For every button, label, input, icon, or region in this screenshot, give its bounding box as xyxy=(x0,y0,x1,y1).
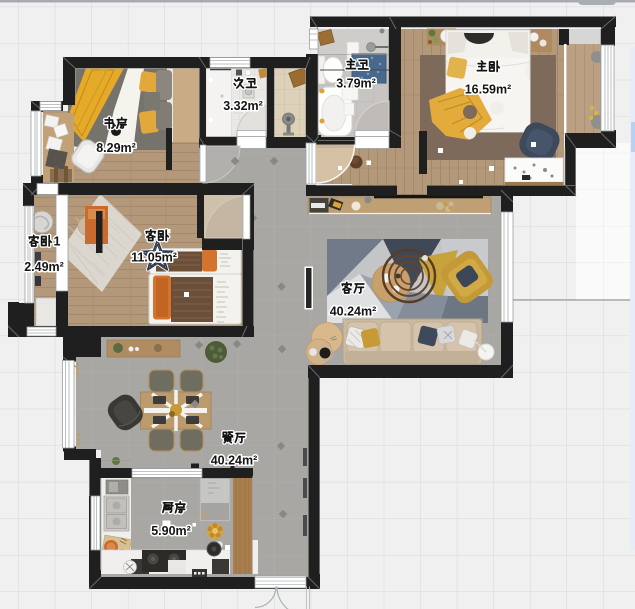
svg-text:8.29m²: 8.29m² xyxy=(96,141,136,155)
svg-text:3.32m²: 3.32m² xyxy=(223,99,263,113)
svg-text:1: 1 xyxy=(54,235,61,249)
svg-text:5.90m²: 5.90m² xyxy=(151,524,191,538)
svg-text:3.79m²: 3.79m² xyxy=(336,77,376,91)
svg-text:40.24m²: 40.24m² xyxy=(211,454,258,468)
svg-text:11.05m²: 11.05m² xyxy=(131,251,177,265)
svg-text:40.24m²: 40.24m² xyxy=(330,305,377,319)
svg-text:16.59m²: 16.59m² xyxy=(465,83,512,97)
svg-text:2.49m²: 2.49m² xyxy=(24,260,64,274)
